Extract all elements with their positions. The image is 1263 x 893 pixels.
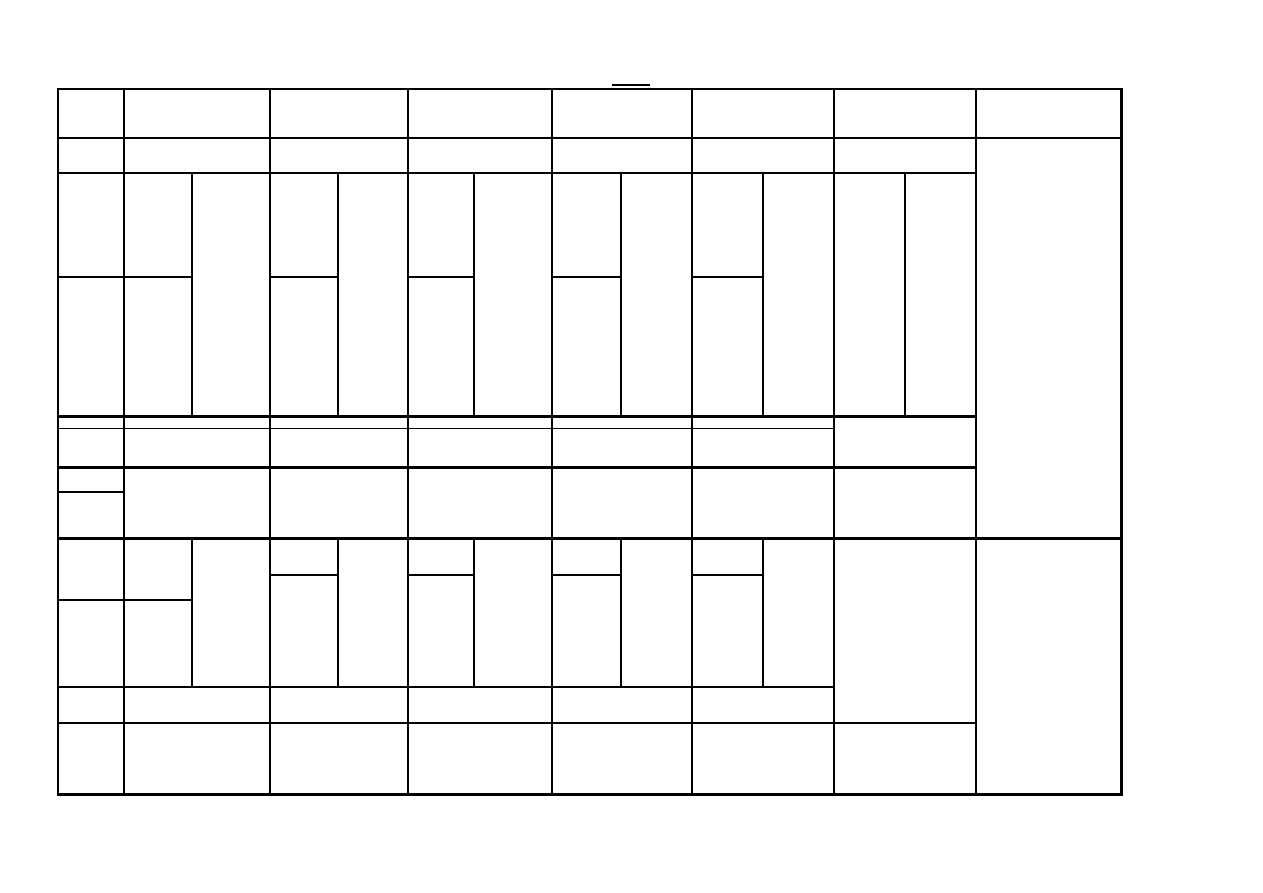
grid-line-v [269, 88, 271, 796]
grid-line-v [1120, 88, 1123, 796]
grid-line-h [57, 137, 1123, 139]
grid-line-h [57, 428, 835, 429]
grid-line-h [57, 599, 193, 601]
blank-table-form [0, 0, 1263, 893]
grid-line-v [473, 537, 475, 688]
grid-line-v [691, 88, 693, 796]
grid-line-v [620, 537, 622, 688]
grid-line-v [762, 537, 764, 688]
grid-line-h [691, 276, 764, 278]
grid-line-v [620, 172, 622, 417]
grid-line-h [57, 793, 1123, 796]
grid-line-h [551, 574, 622, 576]
grid-line-h [57, 466, 977, 469]
grid-line-v [975, 88, 977, 796]
grid-line-h [57, 88, 1123, 90]
grid-line-h [57, 686, 835, 688]
grid-line-v [57, 88, 59, 796]
grid-line-v [407, 88, 409, 796]
grid-line-v [191, 172, 193, 417]
title-underline [612, 84, 650, 86]
grid-line-h [551, 276, 622, 278]
grid-line-v [337, 537, 339, 688]
grid-line-h [407, 574, 475, 576]
grid-line-h [691, 574, 764, 576]
grid-line-h [269, 574, 339, 576]
grid-line-v [337, 172, 339, 417]
grid-line-h [57, 722, 977, 724]
grid-line-h [57, 491, 125, 493]
grid-line-v [191, 537, 193, 688]
grid-line-h [57, 415, 977, 418]
page [0, 0, 1263, 893]
grid-line-h [57, 537, 1123, 540]
grid-line-h [57, 276, 193, 278]
grid-line-v [473, 172, 475, 417]
grid-line-v [833, 88, 835, 796]
grid-line-v [762, 172, 764, 417]
grid-line-v [551, 88, 553, 796]
grid-line-h [269, 276, 339, 278]
grid-line-h [57, 172, 977, 174]
grid-line-v [123, 88, 125, 796]
grid-line-v [904, 172, 906, 417]
grid-line-h [407, 276, 475, 278]
